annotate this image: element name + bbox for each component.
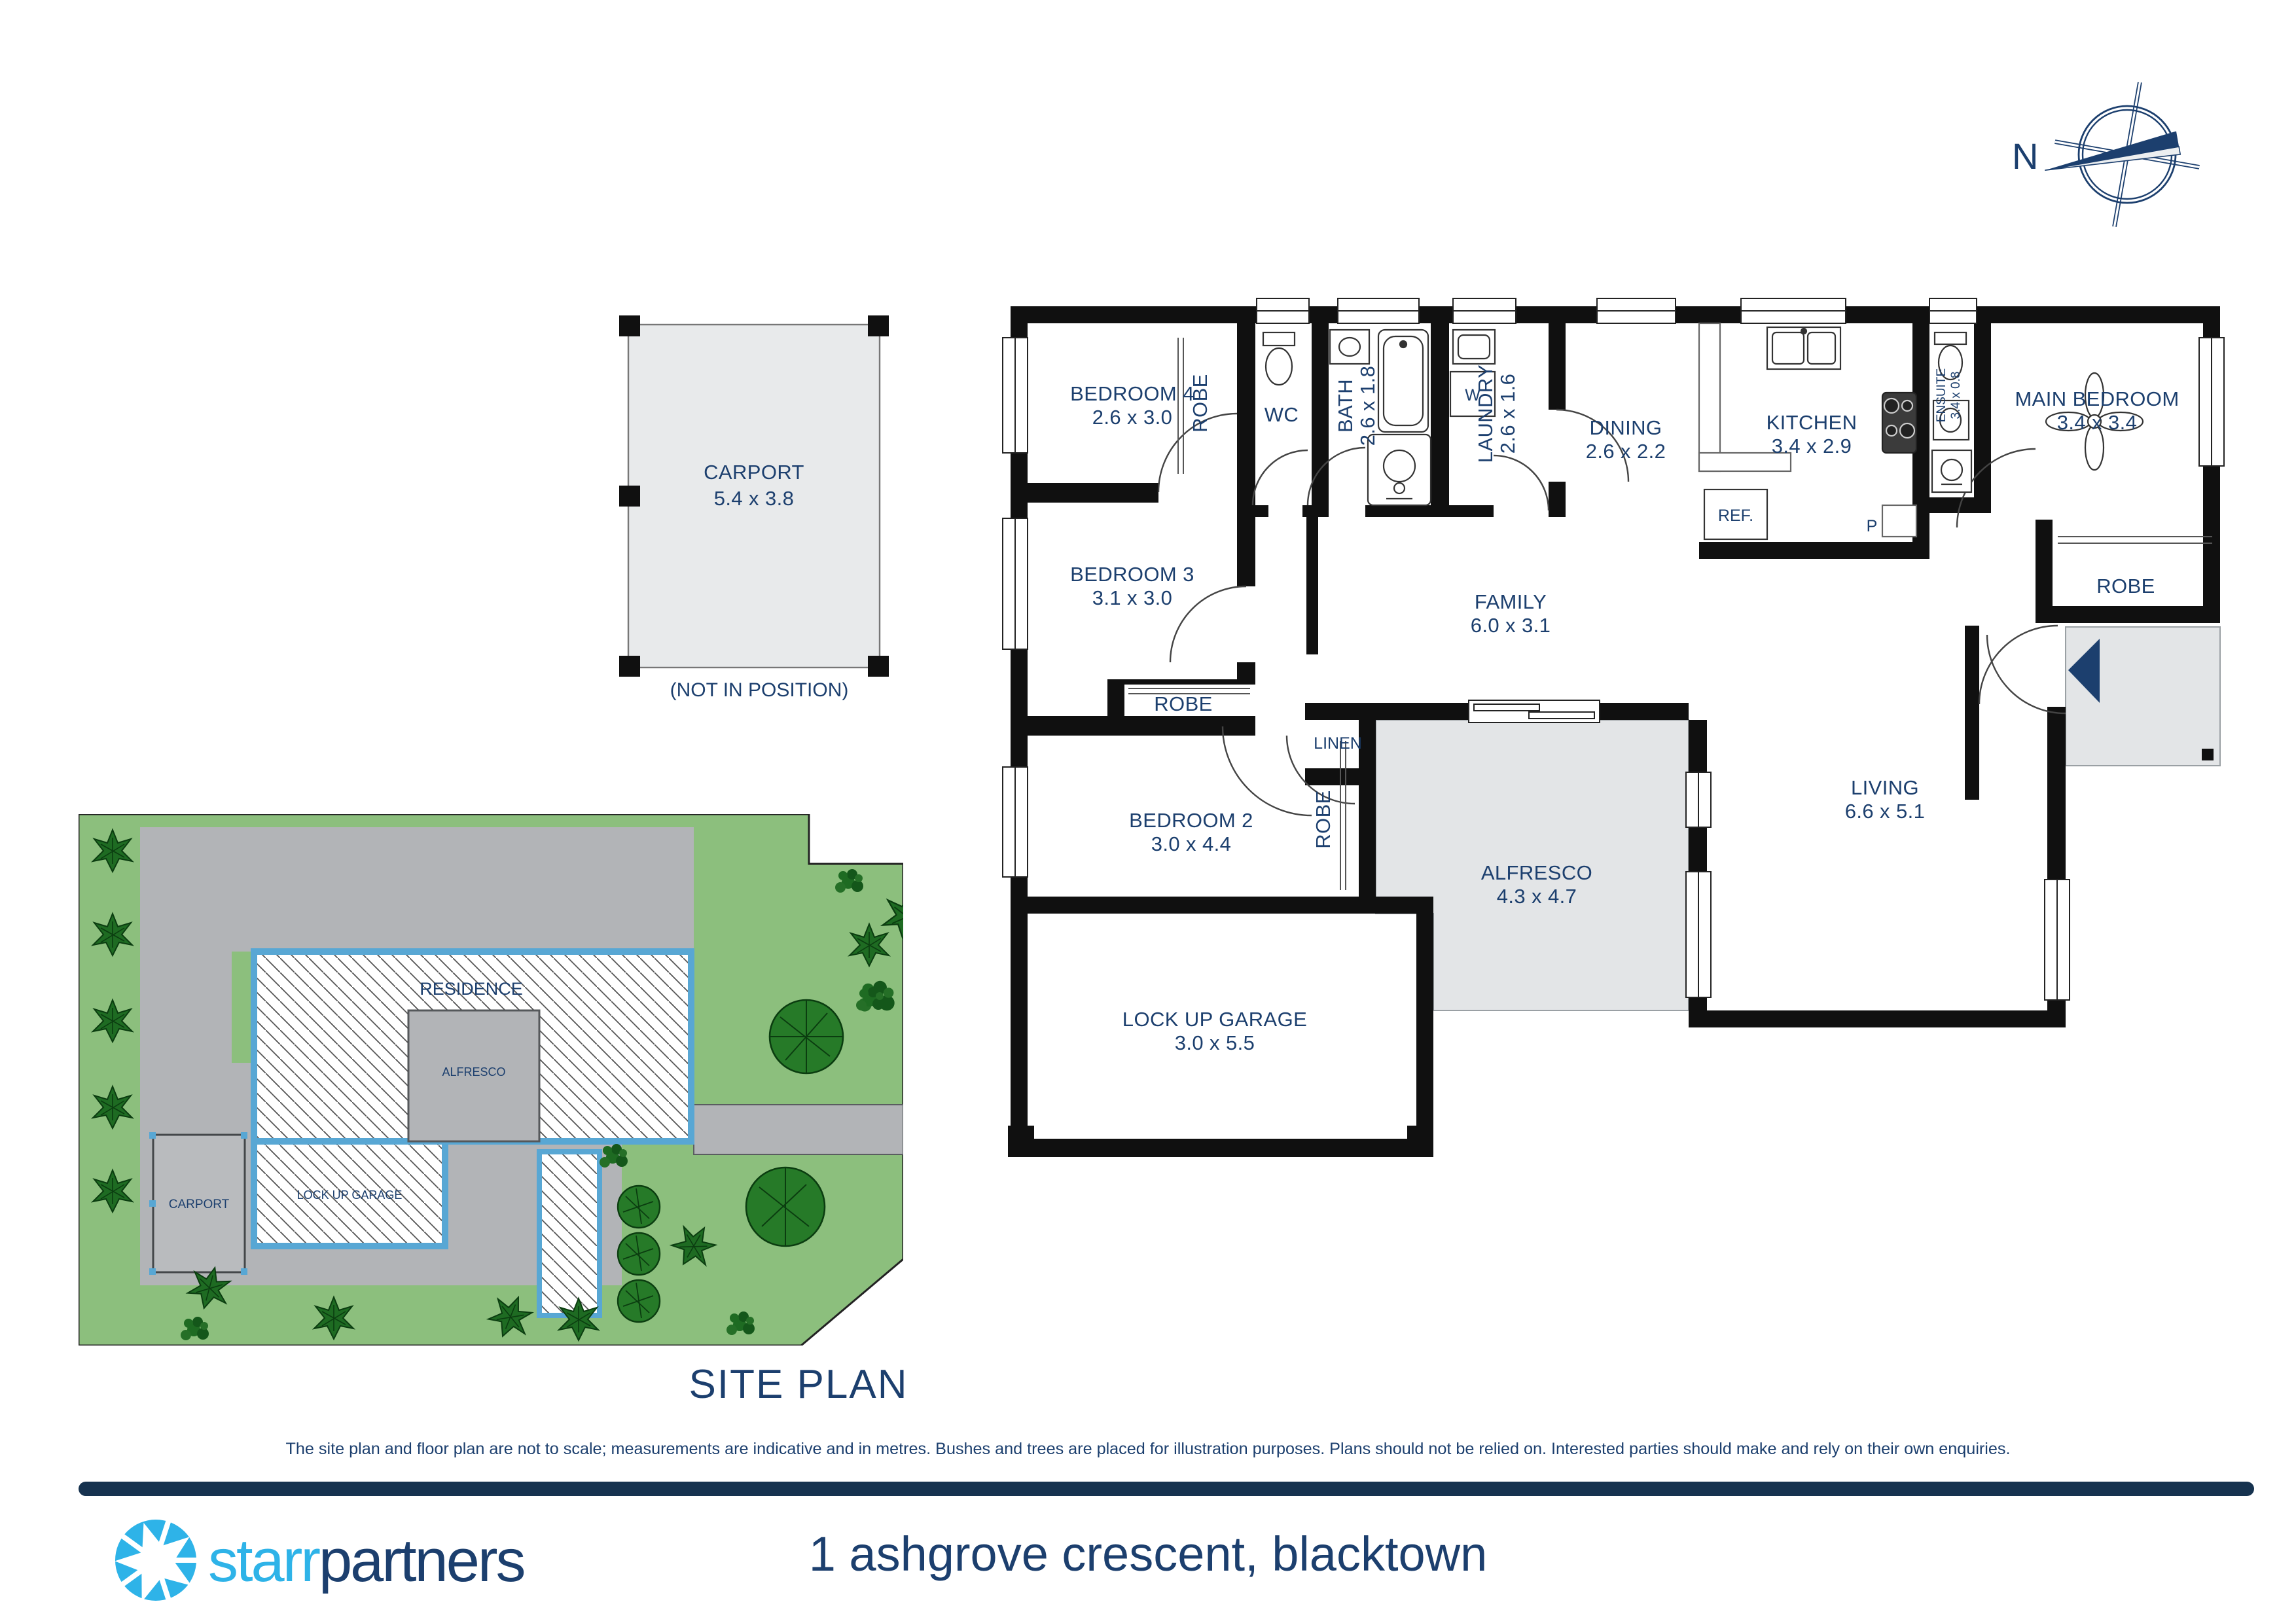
pantry-label: P [1867, 517, 1878, 535]
ensuite-label: ENSUITE [1935, 368, 1948, 422]
bath-label: BATH [1334, 379, 1357, 433]
site-alfresco-label: ALFRESCO [442, 1065, 505, 1079]
site-residence-label: RESIDENCE [420, 979, 523, 999]
bedroom2-dims: 3.0 x 4.4 [1151, 832, 1232, 855]
cooktop-icon [1882, 393, 1916, 453]
main-bedroom-label: MAIN BEDROOM [2015, 387, 2179, 410]
porch-corner-post [2202, 749, 2214, 760]
kitchen-dims: 3.4 x 2.9 [1772, 435, 1852, 457]
site-carport: CARPORT [149, 1132, 247, 1275]
wc-label: WC [1265, 403, 1299, 426]
dining-label: DINING [1590, 416, 1662, 439]
laundry-label: LAUNDRY [1474, 365, 1497, 463]
site-carport-label: CARPORT [169, 1198, 230, 1211]
ensuite-dims: 3.4 x 0.8 [1949, 372, 1963, 419]
bath-dims: 2.6 x 1.8 [1356, 366, 1379, 446]
robe2-label: ROBE [1312, 790, 1335, 848]
compass-needle [2042, 131, 2180, 178]
footer-divider [79, 1482, 2254, 1496]
compass-rose: N [2003, 65, 2238, 249]
bedroom2-label: BEDROOM 2 [1129, 809, 1253, 832]
site-plan-title: SITE PLAN [576, 1361, 1021, 1408]
living-dims: 6.6 x 5.1 [1845, 800, 1926, 823]
ensuite-shower-icon [1932, 450, 1971, 492]
site-plan: RESIDENCE ALFRESCO LOCK UP GARAGE CARPOR… [79, 814, 903, 1346]
site-garage-label: LOCK UP GARAGE [297, 1188, 403, 1202]
dining-dims: 2.6 x 2.2 [1586, 440, 1666, 463]
carport-label: CARPORT [704, 461, 804, 484]
carport-note: (NOT IN POSITION) [563, 679, 956, 702]
bath-vanity-icon [1330, 330, 1369, 364]
garage-label: LOCK UP GARAGE [1122, 1008, 1307, 1031]
entry-porch-area [2066, 627, 2220, 766]
compass-north-label: N [2012, 135, 2038, 177]
alfresco-label: ALFRESCO [1481, 861, 1592, 884]
robe-main-label: ROBE [2096, 575, 2155, 597]
washer-label: W [1465, 386, 1480, 404]
pantry-shelf [1882, 505, 1916, 537]
fridge-label: REF. [1718, 507, 1753, 525]
family-dims: 6.0 x 3.1 [1471, 614, 1551, 637]
kitchen-label: KITCHEN [1767, 411, 1857, 434]
carport-dims: 5.4 x 3.8 [714, 487, 795, 510]
floorplan-page: N CARPORT 5.4 x 3.8 (NOT IN POSITION) [0, 0, 2296, 1623]
site-hatched-strip [539, 1152, 600, 1315]
bedroom4-label: BEDROOM 4 [1070, 382, 1194, 405]
bedroom3-dims: 3.1 x 3.0 [1092, 586, 1173, 609]
bedroom3-label: BEDROOM 3 [1070, 563, 1194, 586]
carport-diagram: CARPORT 5.4 x 3.8 [615, 312, 903, 691]
robe3-label: ROBE [1154, 692, 1212, 715]
bathtub-icon [1378, 330, 1428, 432]
disclaimer-text: The site plan and floor plan are not to … [0, 1440, 2296, 1458]
kitchen-sink-icon [1767, 327, 1840, 369]
laundry-trough-icon [1453, 330, 1495, 364]
toilet-icon [1263, 332, 1295, 385]
garage-dims: 3.0 x 5.5 [1175, 1031, 1255, 1054]
laundry-dims: 2.6 x 1.6 [1496, 374, 1519, 454]
main-bedroom-dims: 3.4 x 3.4 [2057, 411, 2138, 434]
family-label: FAMILY [1475, 590, 1547, 613]
linen-label: LINEN [1314, 734, 1362, 753]
living-label: LIVING [1851, 776, 1919, 799]
property-address: 1 ashgrove crescent, blacktown [0, 1527, 2296, 1582]
floor-plan: BEDROOM 4 2.6 x 3.0 ROBE WC BATH 2.6 x 1… [982, 275, 2238, 1178]
robe4-label: ROBE [1189, 374, 1211, 432]
alfresco-dims: 4.3 x 4.7 [1497, 885, 1577, 908]
bedroom4-dims: 2.6 x 3.0 [1092, 406, 1173, 429]
